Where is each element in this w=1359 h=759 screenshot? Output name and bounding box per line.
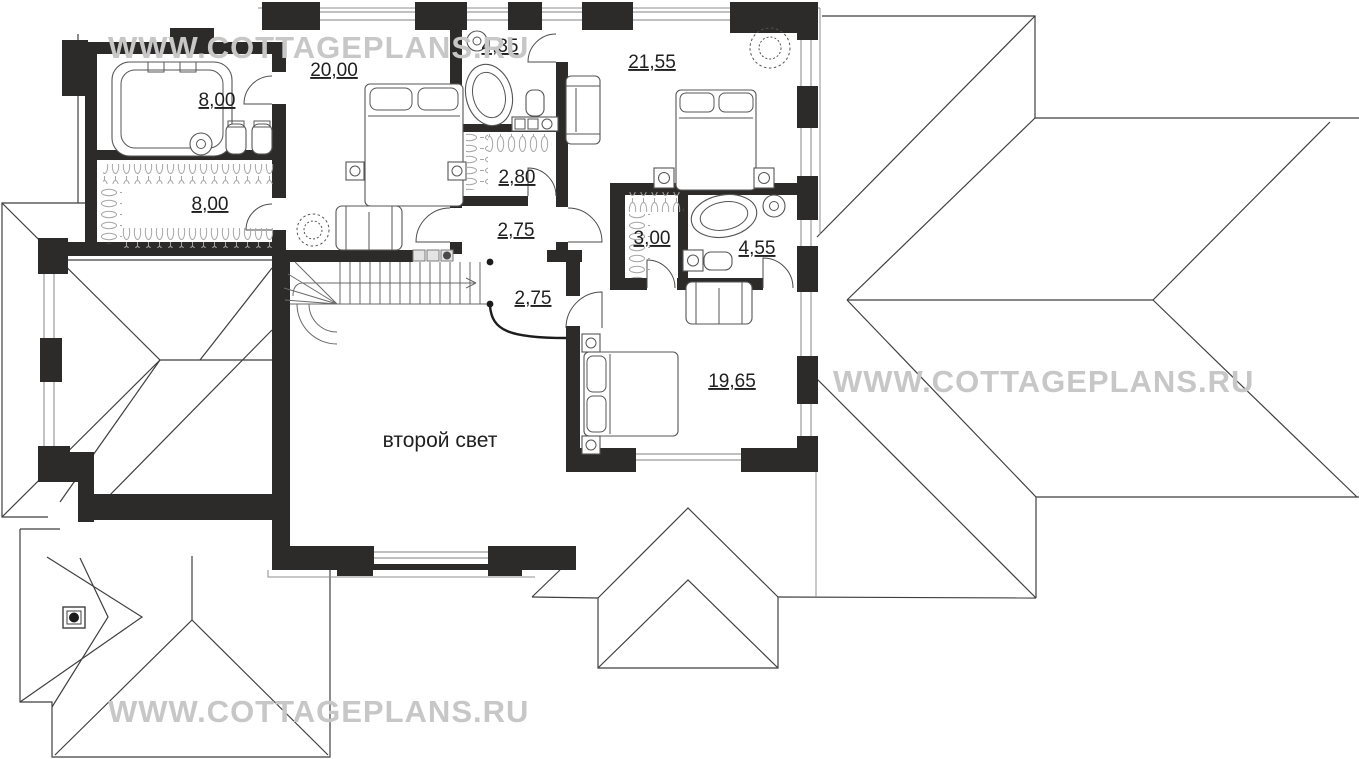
floor-plan-page: 8,00 8,00 20,00 4,35 2,80 2,75 21,55 3,0… (0, 0, 1359, 759)
bed-icon (365, 84, 463, 206)
hanger-rail (103, 164, 275, 184)
sink-icon (763, 195, 785, 217)
toilet-icon (526, 90, 544, 116)
washer-icon (683, 250, 703, 271)
hanger-rail (466, 132, 488, 190)
floor-plan-canvas: 8,00 8,00 20,00 4,35 2,80 2,75 21,55 3,0… (0, 0, 1359, 759)
hanger-rail (626, 192, 684, 212)
room-label-bedroom2: 21,55 (628, 52, 676, 73)
bed-icon (584, 352, 678, 436)
hanger-rail (100, 186, 122, 244)
room-label-closet2: 3,00 (634, 228, 671, 249)
watermark-middle-right: WWW.COTTAGEPLANS.RU (833, 364, 1254, 399)
second-light-label: второй свет (383, 429, 498, 452)
watermark-bottom-left: WWW.COTTAGEPLANS.RU (108, 694, 529, 729)
room-label-bedroom3: 19,65 (708, 371, 756, 392)
watermark-top-left: WWW.COTTAGEPLANS.RU (108, 30, 529, 65)
sink-icon (190, 133, 212, 155)
room-label-wardrobe: 8,00 (192, 194, 229, 215)
toilet-icon (226, 124, 246, 154)
room-label-bath2: 4,55 (739, 238, 776, 259)
room-label-hall2: 2,75 (515, 288, 552, 309)
toilet-icon (704, 252, 732, 270)
hanger-rail (122, 228, 276, 248)
hanger-rail (488, 134, 552, 154)
room-label-hall1: 2,75 (498, 220, 535, 241)
room-label-sauna: 8,00 (199, 90, 236, 111)
bed-icon (676, 90, 756, 190)
room-label-closet1: 2,80 (499, 167, 536, 188)
toilet-icon (252, 124, 272, 154)
